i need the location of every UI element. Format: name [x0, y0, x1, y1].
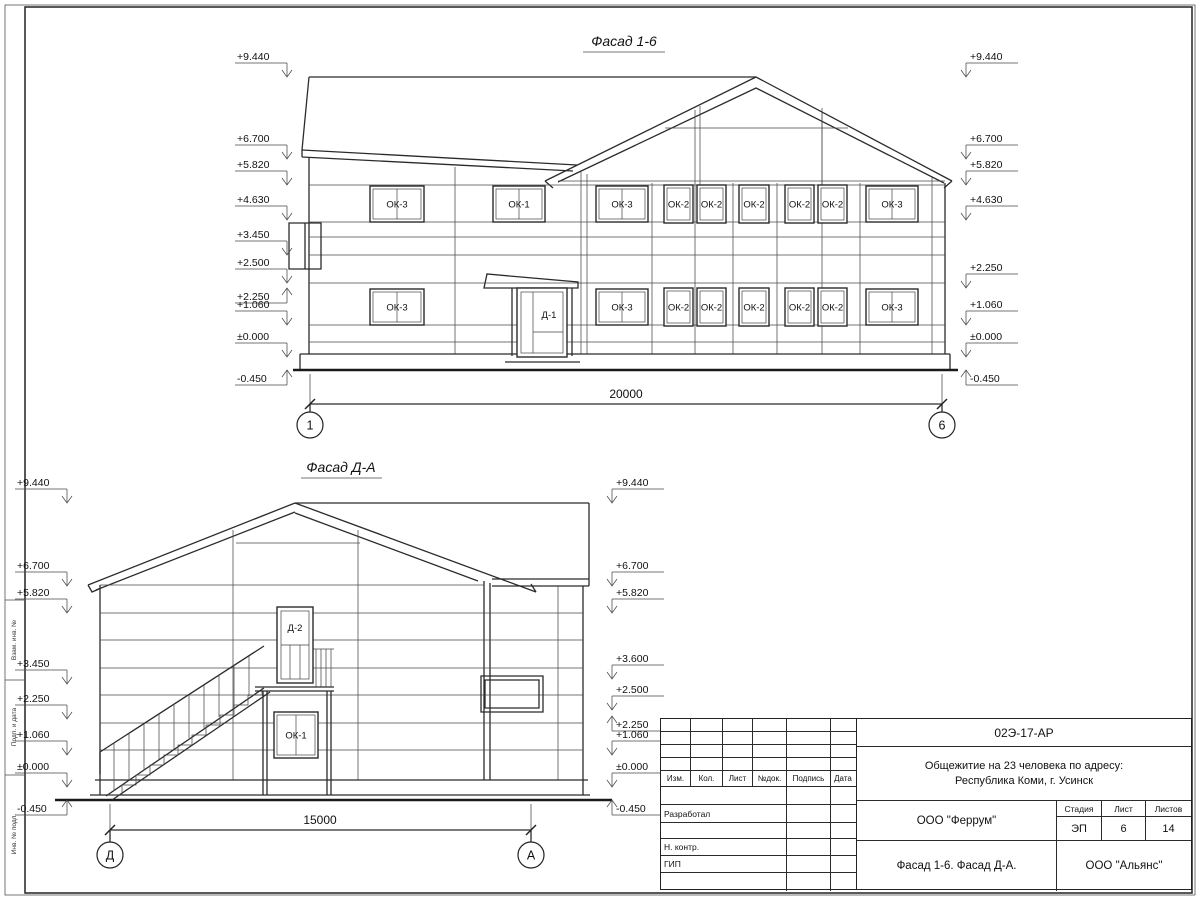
row-developed: Разработал — [661, 805, 787, 822]
window: ОК-2 — [697, 185, 726, 223]
elevation-value: +2.500 — [237, 257, 270, 269]
elevation-mark: -0.450 — [15, 800, 72, 815]
axis-label-a: А — [527, 849, 536, 863]
facade-d-a-title: Фасад Д-А — [306, 459, 375, 475]
col-izm: Изм. — [661, 771, 691, 786]
col-list: Лист — [723, 771, 753, 786]
sheet-label: Лист — [1102, 801, 1146, 817]
door-label: Д-1 — [542, 310, 557, 321]
window-label: ОК-2 — [822, 200, 843, 211]
window: ОК-3 — [596, 186, 648, 222]
elevation-mark: +9.440 — [961, 51, 1018, 77]
elevation-mark: +2.250 — [961, 262, 1018, 288]
title-block-main: 02Э-17-АР Общежитие на 23 человека по ад… — [857, 719, 1193, 889]
window-label: ОК-2 — [743, 200, 764, 211]
axis-label-6: 6 — [939, 419, 946, 433]
col-ndok: №док. — [753, 771, 787, 786]
elevation-mark: ±0.000 — [235, 331, 292, 357]
project-line2: Республика Коми, г. Усинск — [955, 774, 1093, 788]
elevation-mark: +1.060 — [961, 299, 1018, 325]
title-block: Изм. Кол. Лист №док. Подпись Дата Разраб… — [660, 718, 1192, 890]
elevation-value: +5.820 — [616, 587, 649, 599]
window-label: ОК-3 — [611, 303, 632, 314]
door-label: Д-2 — [288, 623, 303, 634]
elevation-mark: +5.820 — [607, 587, 664, 613]
elevation-value: +2.250 — [17, 693, 50, 705]
elevation-value: +4.630 — [970, 194, 1003, 206]
frame-label-inv: Инв. № подл. — [11, 814, 18, 855]
window: ОК-2 — [664, 185, 693, 223]
window-label: ОК-3 — [386, 303, 407, 314]
elevation-mark: +6.700 — [961, 133, 1018, 159]
project-name: Общежитие на 23 человека по адресу: Респ… — [857, 747, 1191, 801]
window-label: ОК-3 — [881, 303, 902, 314]
window: ОК-2 — [697, 288, 726, 326]
facade-1-6-windows: ОК-3ОК-1ОК-3ОК-2ОК-2ОК-2ОК-2ОК-2ОК-3ОК-3… — [370, 185, 918, 357]
elevation-mark: +2.500 — [235, 257, 292, 283]
elevation-value: +6.700 — [616, 560, 649, 572]
elevation-value: +6.700 — [17, 560, 50, 572]
window: ОК-2 — [739, 288, 769, 326]
elevation-mark: +6.700 — [15, 560, 72, 586]
sheets-label: Листов — [1146, 801, 1191, 817]
window-label: ОК-3 — [386, 200, 407, 211]
col-kol: Кол. — [691, 771, 723, 786]
facade-d-a-openings: Д-2ОК-1 — [274, 607, 318, 758]
elevation-value: +5.820 — [17, 587, 50, 599]
window-label: ОК-2 — [789, 200, 810, 211]
elevation-value: +5.820 — [970, 159, 1003, 171]
elevation-value: +3.600 — [616, 653, 649, 665]
elevation-mark: +6.700 — [235, 133, 292, 159]
facade-1-6-marks-right: +9.440+6.700+5.820+4.630+2.250+1.060±0.0… — [961, 51, 1018, 385]
elevation-mark: -0.450 — [607, 800, 664, 815]
elevation-value: +6.700 — [970, 133, 1003, 145]
elevation-value: -0.450 — [237, 373, 267, 385]
elevation-value: +2.250 — [970, 262, 1003, 274]
window-label: ОК-2 — [789, 303, 810, 314]
contractor-org: ООО "Альянс" — [1057, 841, 1191, 891]
facade-1-6-dimension: 20000 1 6 — [297, 374, 955, 438]
elevation-mark: +1.060 — [607, 729, 664, 755]
door: Д-2 — [277, 607, 313, 683]
window: ОК-3 — [866, 186, 918, 222]
col-podpis: Подпись — [787, 771, 831, 786]
window: ОК-3 — [370, 186, 424, 222]
row-gip: ГИП — [661, 856, 787, 872]
elevation-value: +3.450 — [17, 658, 50, 670]
frame-label-vzam: Взам. инв. № — [11, 620, 18, 660]
facade-1-6: Фасад 1-6 О — [235, 33, 1018, 438]
facade-d-a-marks-right: +9.440+6.700+5.820+3.600+2.500+2.250+1.0… — [607, 477, 664, 815]
elevation-value: +1.060 — [17, 729, 50, 741]
elevation-value: +6.700 — [237, 133, 270, 145]
facade-1-6-linework — [289, 77, 958, 370]
elevation-value: +9.440 — [616, 477, 649, 489]
elevation-value: -0.450 — [17, 803, 47, 815]
doc-code: 02Э-17-АР — [857, 719, 1191, 747]
window-label: ОК-2 — [822, 303, 843, 314]
window: ОК-3 — [596, 289, 648, 325]
elevation-value: +3.450 — [237, 229, 270, 241]
axis-label-1: 1 — [307, 419, 314, 433]
stage-label: Стадия — [1057, 801, 1102, 817]
elevation-value: ±0.000 — [970, 331, 1002, 343]
dimension-value: 20000 — [609, 387, 643, 401]
sheet-name: Фасад 1-6. Фасад Д-А. — [857, 841, 1057, 891]
elevation-value: +9.440 — [970, 51, 1003, 63]
elevation-value: +9.440 — [17, 477, 50, 489]
window: ОК-2 — [818, 288, 847, 326]
elevation-mark: +9.440 — [15, 477, 72, 503]
designer-org: ООО "Феррум" — [857, 801, 1057, 841]
elevation-value: +2.500 — [616, 684, 649, 696]
elevation-mark: +2.500 — [607, 684, 664, 710]
elevation-value: ±0.000 — [17, 761, 49, 773]
elevation-mark: ±0.000 — [961, 331, 1018, 357]
elevation-mark: +4.630 — [235, 194, 292, 220]
row-ncontr: Н. контр. — [661, 839, 787, 855]
window: ОК-3 — [866, 289, 918, 325]
elevation-value: +1.060 — [237, 299, 270, 311]
sheets-total: 14 — [1146, 817, 1191, 841]
elevation-value: ±0.000 — [237, 331, 269, 343]
elevation-value: +4.630 — [237, 194, 270, 206]
elevation-value: +9.440 — [237, 51, 270, 63]
window-label: ОК-3 — [611, 200, 632, 211]
elevation-mark: +3.450 — [235, 229, 292, 255]
sheet-number: 6 — [1102, 817, 1146, 841]
facade-d-a-linework — [55, 503, 612, 800]
window-label: ОК-2 — [668, 200, 689, 211]
facade-d-a-marks-left: +9.440+6.700+5.820+3.450+2.250+1.060±0.0… — [15, 477, 72, 815]
elevation-value: +5.820 — [237, 159, 270, 171]
dimension-value: 15000 — [303, 813, 337, 827]
window-label: ОК-2 — [701, 303, 722, 314]
elevation-mark: +9.440 — [235, 51, 292, 77]
elevation-value: -0.450 — [970, 373, 1000, 385]
window-label: ОК-3 — [881, 200, 902, 211]
elevation-mark: -0.450 — [961, 370, 1018, 385]
door: Д-1 — [517, 288, 567, 357]
elevation-mark: +1.060 — [15, 729, 72, 755]
elevation-mark: ±0.000 — [607, 761, 664, 787]
window-label: ОК-2 — [668, 303, 689, 314]
window: ОК-1 — [274, 712, 318, 758]
window: ОК-1 — [493, 186, 545, 222]
elevation-mark: +5.820 — [235, 159, 292, 185]
facade-d-a: Фасад Д-А — [15, 459, 664, 868]
window: ОК-2 — [739, 185, 769, 223]
window-label: ОК-1 — [285, 731, 306, 742]
axis-label-d: Д — [106, 849, 115, 863]
window: ОК-2 — [664, 288, 693, 326]
facade-1-6-marks-left: +9.440+6.700+5.820+4.630+3.450+2.500+2.2… — [235, 51, 292, 385]
elevation-mark: +4.630 — [961, 194, 1018, 220]
facade-1-6-title: Фасад 1-6 — [591, 33, 657, 49]
elevation-value: -0.450 — [616, 803, 646, 815]
window: ОК-2 — [785, 185, 814, 223]
elevation-value: ±0.000 — [616, 761, 648, 773]
stage-value: ЭП — [1057, 817, 1102, 841]
project-line1: Общежитие на 23 человека по адресу: — [925, 759, 1123, 773]
window-label: ОК-2 — [701, 200, 722, 211]
window-label: ОК-1 — [508, 200, 529, 211]
elevation-mark: +9.440 — [607, 477, 664, 503]
elevation-mark: +3.600 — [607, 653, 664, 679]
col-data: Дата — [831, 771, 855, 786]
window: ОК-2 — [785, 288, 814, 326]
drawing-sheet: Взам. инв. № Подп. и дата Инв. № подл. Ф… — [0, 0, 1200, 900]
elevation-value: +1.060 — [616, 729, 649, 741]
elevation-mark: +5.820 — [961, 159, 1018, 185]
elevation-mark: -0.450 — [235, 370, 292, 385]
elevation-mark: ±0.000 — [15, 761, 72, 787]
elevation-value: +1.060 — [970, 299, 1003, 311]
title-block-revision-table: Изм. Кол. Лист №док. Подпись Дата Разраб… — [661, 719, 857, 889]
window: ОК-3 — [370, 289, 424, 325]
window: ОК-2 — [818, 185, 847, 223]
elevation-mark: +2.250 — [15, 693, 72, 719]
window-label: ОК-2 — [743, 303, 764, 314]
facade-d-a-dimension: 15000 Д А — [97, 804, 544, 868]
elevation-mark: +6.700 — [607, 560, 664, 586]
